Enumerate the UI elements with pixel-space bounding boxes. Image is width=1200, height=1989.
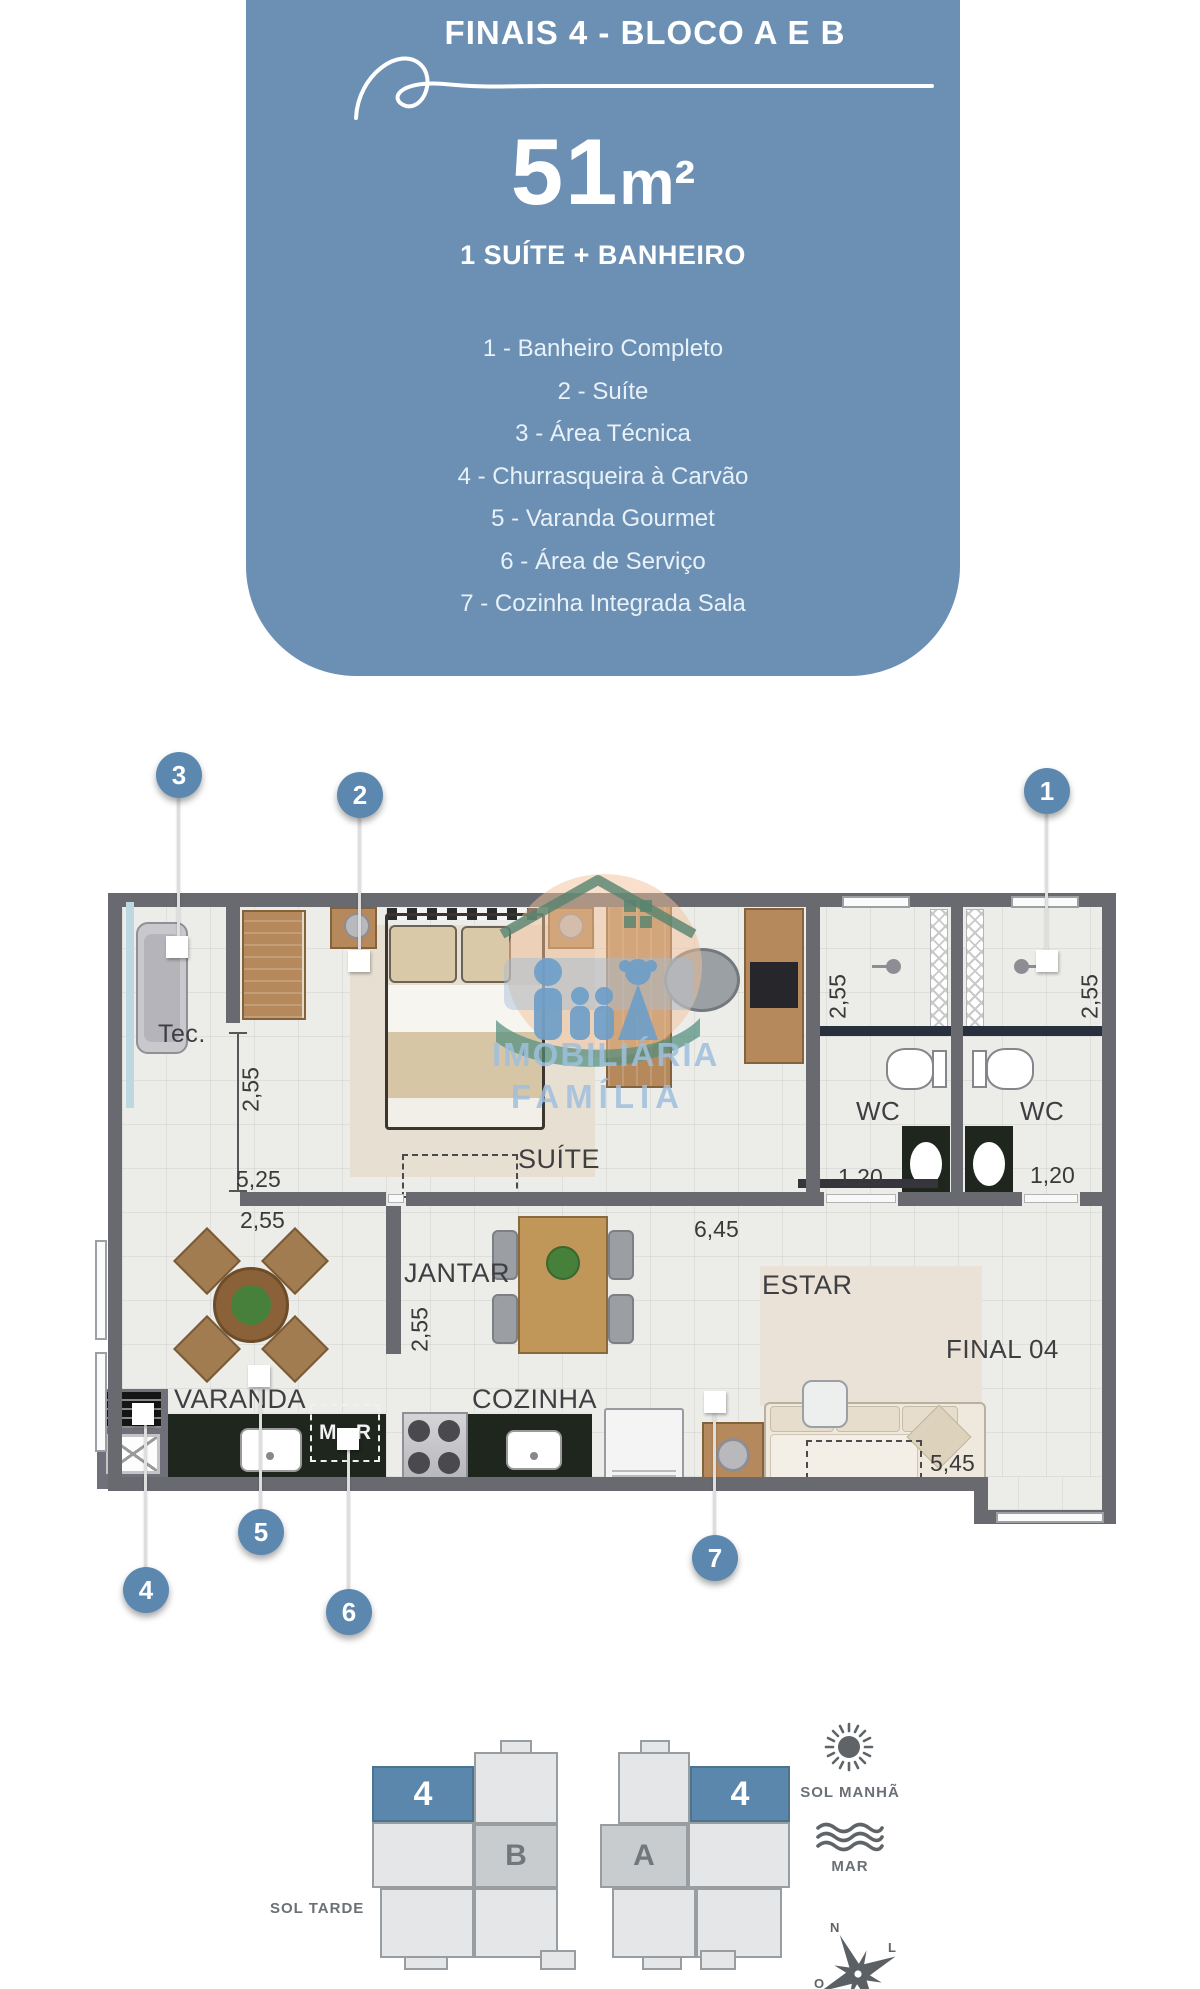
shower-head-icon <box>1014 959 1029 974</box>
marker-3: 3 <box>156 752 202 798</box>
legend-item: 4 - Churrasqueira à Carvão <box>246 456 960 499</box>
compass-l-label: L <box>888 1940 896 1955</box>
sink-icon <box>973 1142 1005 1186</box>
block-a-label: A <box>602 1826 686 1886</box>
block-b-unit4-label: 4 <box>374 1768 472 1820</box>
dim-varanda-width: 2,55 <box>240 1207 285 1234</box>
legend-item: 2 - Suíte <box>246 371 960 414</box>
legend-item: 7 - Cozinha Integrada Sala <box>246 583 960 626</box>
block-b-cell <box>380 1888 474 1958</box>
rack-icon <box>606 904 672 1088</box>
floor-area-step <box>974 1477 1102 1510</box>
block-b-tab <box>404 1956 448 1970</box>
wc-left-door <box>826 1194 896 1203</box>
marker-point-4 <box>132 1403 154 1425</box>
dim-wc-left-height: 2,55 <box>825 969 852 1025</box>
dim-suite-width: 5,25 <box>236 1166 281 1193</box>
lamp-icon <box>716 1438 750 1472</box>
wall-left <box>108 893 122 1491</box>
marker-line-3 <box>177 798 180 938</box>
block-b-cell <box>372 1822 474 1888</box>
marker-1: 1 <box>1024 768 1070 814</box>
suite-door <box>388 1194 404 1203</box>
office-chair-icon <box>664 948 740 1012</box>
wall-middle-2 <box>406 1192 806 1206</box>
compass-o-label: O <box>814 1976 824 1989</box>
block-b-cell <box>474 1888 558 1958</box>
block-b-core: B <box>474 1824 558 1888</box>
block-a-cell <box>618 1752 690 1824</box>
sol-manha-label: SOL MANHÃ <box>800 1784 900 1801</box>
chair-icon <box>492 1294 518 1344</box>
wall-suite-wc <box>806 907 820 1206</box>
faucet-icon <box>530 1452 538 1460</box>
dining-table-icon <box>518 1216 608 1354</box>
varanda-window-1 <box>95 1240 107 1340</box>
marker-2: 2 <box>337 772 383 818</box>
mar-label: MAR <box>820 1858 880 1875</box>
wall-top <box>108 893 1116 907</box>
legend-item: 1 - Banheiro Completo <box>246 328 960 371</box>
monitor-icon <box>750 962 798 1008</box>
dim-estar-width: 5,45 <box>930 1450 975 1477</box>
sink-icon <box>240 1428 302 1472</box>
card-subtitle: 1 SUÍTE + BANHEIRO <box>246 240 960 271</box>
marker-line-7 <box>713 1412 716 1537</box>
shower-head-icon <box>886 959 901 974</box>
area-unit: m² <box>619 149 695 218</box>
dimension-tick <box>229 1032 247 1034</box>
wc-right-door <box>1024 1194 1078 1203</box>
wall-middle-5 <box>1080 1192 1102 1206</box>
coffee-table-icon <box>802 1380 848 1428</box>
dim-wc-left-width: 1,20 <box>838 1164 883 1191</box>
wc-right-glass-partition <box>963 1026 1102 1036</box>
lamp-icon <box>558 913 584 939</box>
dim-corridor: 2,55 <box>238 1062 265 1118</box>
wall-varanda-jantar <box>386 1206 401 1354</box>
burner-icon <box>438 1452 460 1474</box>
dim-jantar-height: 2,55 <box>407 1302 434 1358</box>
sun-icon <box>824 1722 874 1772</box>
marker-point-1 <box>1036 950 1058 972</box>
block-b-tab <box>540 1950 576 1970</box>
marker-point-5 <box>248 1365 270 1387</box>
block-b-unit4: 4 <box>372 1766 474 1822</box>
marker-line-4 <box>144 1424 147 1569</box>
block-a-tab <box>642 1956 682 1970</box>
info-card: FINAIS 4 - BLOCO A E B 51m² 1 SUÍTE + BA… <box>246 0 960 676</box>
tec-window-band <box>126 902 134 1108</box>
plant-icon <box>231 1285 271 1325</box>
wall-middle-3 <box>806 1192 824 1206</box>
wall-step <box>974 1477 988 1524</box>
legend-list: 1 - Banheiro Completo 2 - Suíte 3 - Área… <box>246 328 960 626</box>
room-label-jantar: JANTAR <box>404 1258 510 1289</box>
room-label-suite: SUÍTE <box>518 1144 600 1175</box>
sea-waves-icon <box>814 1820 886 1854</box>
marker-line-1 <box>1045 814 1048 952</box>
flyer-page: FINAIS 4 - BLOCO A E B 51m² 1 SUÍTE + BA… <box>0 0 1200 1989</box>
area-value: 51 <box>511 119 620 224</box>
room-label-wc-right: WC <box>1020 1096 1064 1127</box>
varanda-window-2 <box>95 1352 107 1452</box>
chair-icon <box>608 1294 634 1344</box>
area-size: 51m² <box>246 118 960 226</box>
lamp-icon <box>344 913 370 939</box>
marker-line-2 <box>358 818 361 952</box>
burner-icon <box>408 1452 430 1474</box>
block-a-tab <box>700 1950 736 1970</box>
dim-wc-right-width: 1,20 <box>1030 1162 1075 1189</box>
signature-swoosh-icon <box>336 40 936 124</box>
bed-icon <box>385 913 545 1130</box>
burner-icon <box>438 1420 460 1442</box>
wall-wc-divider <box>951 907 963 1206</box>
block-b-label: B <box>476 1826 556 1886</box>
marker-line-5 <box>259 1387 262 1511</box>
marker-point-3 <box>166 936 188 958</box>
compass-n-label: N <box>830 1920 839 1935</box>
wc-left-window <box>842 896 910 908</box>
wall-bottom <box>108 1477 988 1491</box>
block-a-cell <box>688 1822 790 1888</box>
plant-icon <box>546 1246 580 1280</box>
room-label-varanda: VARANDA <box>174 1384 306 1415</box>
block-b-cell <box>474 1752 558 1824</box>
shower-door-left <box>930 909 948 1029</box>
wall-right <box>1102 893 1116 1510</box>
marker-point-6 <box>337 1428 359 1450</box>
block-a-cell <box>696 1888 782 1958</box>
legend-item: 3 - Área Técnica <box>246 413 960 456</box>
wc-left-glass-partition <box>820 1026 951 1036</box>
burner-icon <box>408 1420 430 1442</box>
block-a-cell <box>612 1888 696 1958</box>
dim-wc-right-height: 2,55 <box>1077 969 1104 1025</box>
marker-point-2 <box>348 950 370 972</box>
shower-door-right <box>966 909 984 1029</box>
room-label-tec: Tec. <box>158 1020 206 1049</box>
toilet-tank <box>932 1050 947 1088</box>
unit-label-final04: FINAL 04 <box>946 1334 1059 1365</box>
wardrobe-icon <box>242 910 306 1020</box>
toilet-icon <box>986 1048 1034 1090</box>
block-a-unit4: 4 <box>690 1766 790 1822</box>
sink-icon <box>506 1430 562 1470</box>
room-label-wc-left: WC <box>856 1096 900 1127</box>
marker-7: 7 <box>692 1535 738 1581</box>
chair-icon <box>608 1230 634 1280</box>
block-a-unit4-label: 4 <box>692 1768 788 1820</box>
sol-tarde-label: SOL TARDE <box>270 1900 364 1917</box>
legend-item: 5 - Varanda Gourmet <box>246 498 960 541</box>
room-label-cozinha: COZINHA <box>472 1384 597 1415</box>
block-a-core: A <box>600 1824 688 1888</box>
marker-4: 4 <box>123 1567 169 1613</box>
dim-hall-width: 6,45 <box>694 1216 739 1243</box>
toilet-icon <box>886 1048 934 1090</box>
marker-6: 6 <box>326 1589 372 1635</box>
toilet-tank <box>972 1050 987 1088</box>
marker-point-7 <box>704 1391 726 1413</box>
faucet-icon <box>266 1452 274 1460</box>
entry-window <box>996 1512 1104 1523</box>
marker-5: 5 <box>238 1509 284 1555</box>
room-label-estar: ESTAR <box>762 1270 853 1301</box>
wall-tec <box>226 907 240 1023</box>
compass-rose-icon <box>813 1929 903 1989</box>
legend-item: 6 - Área de Serviço <box>246 541 960 584</box>
wall-middle-1 <box>240 1192 386 1206</box>
marker-line-6 <box>347 1450 350 1591</box>
